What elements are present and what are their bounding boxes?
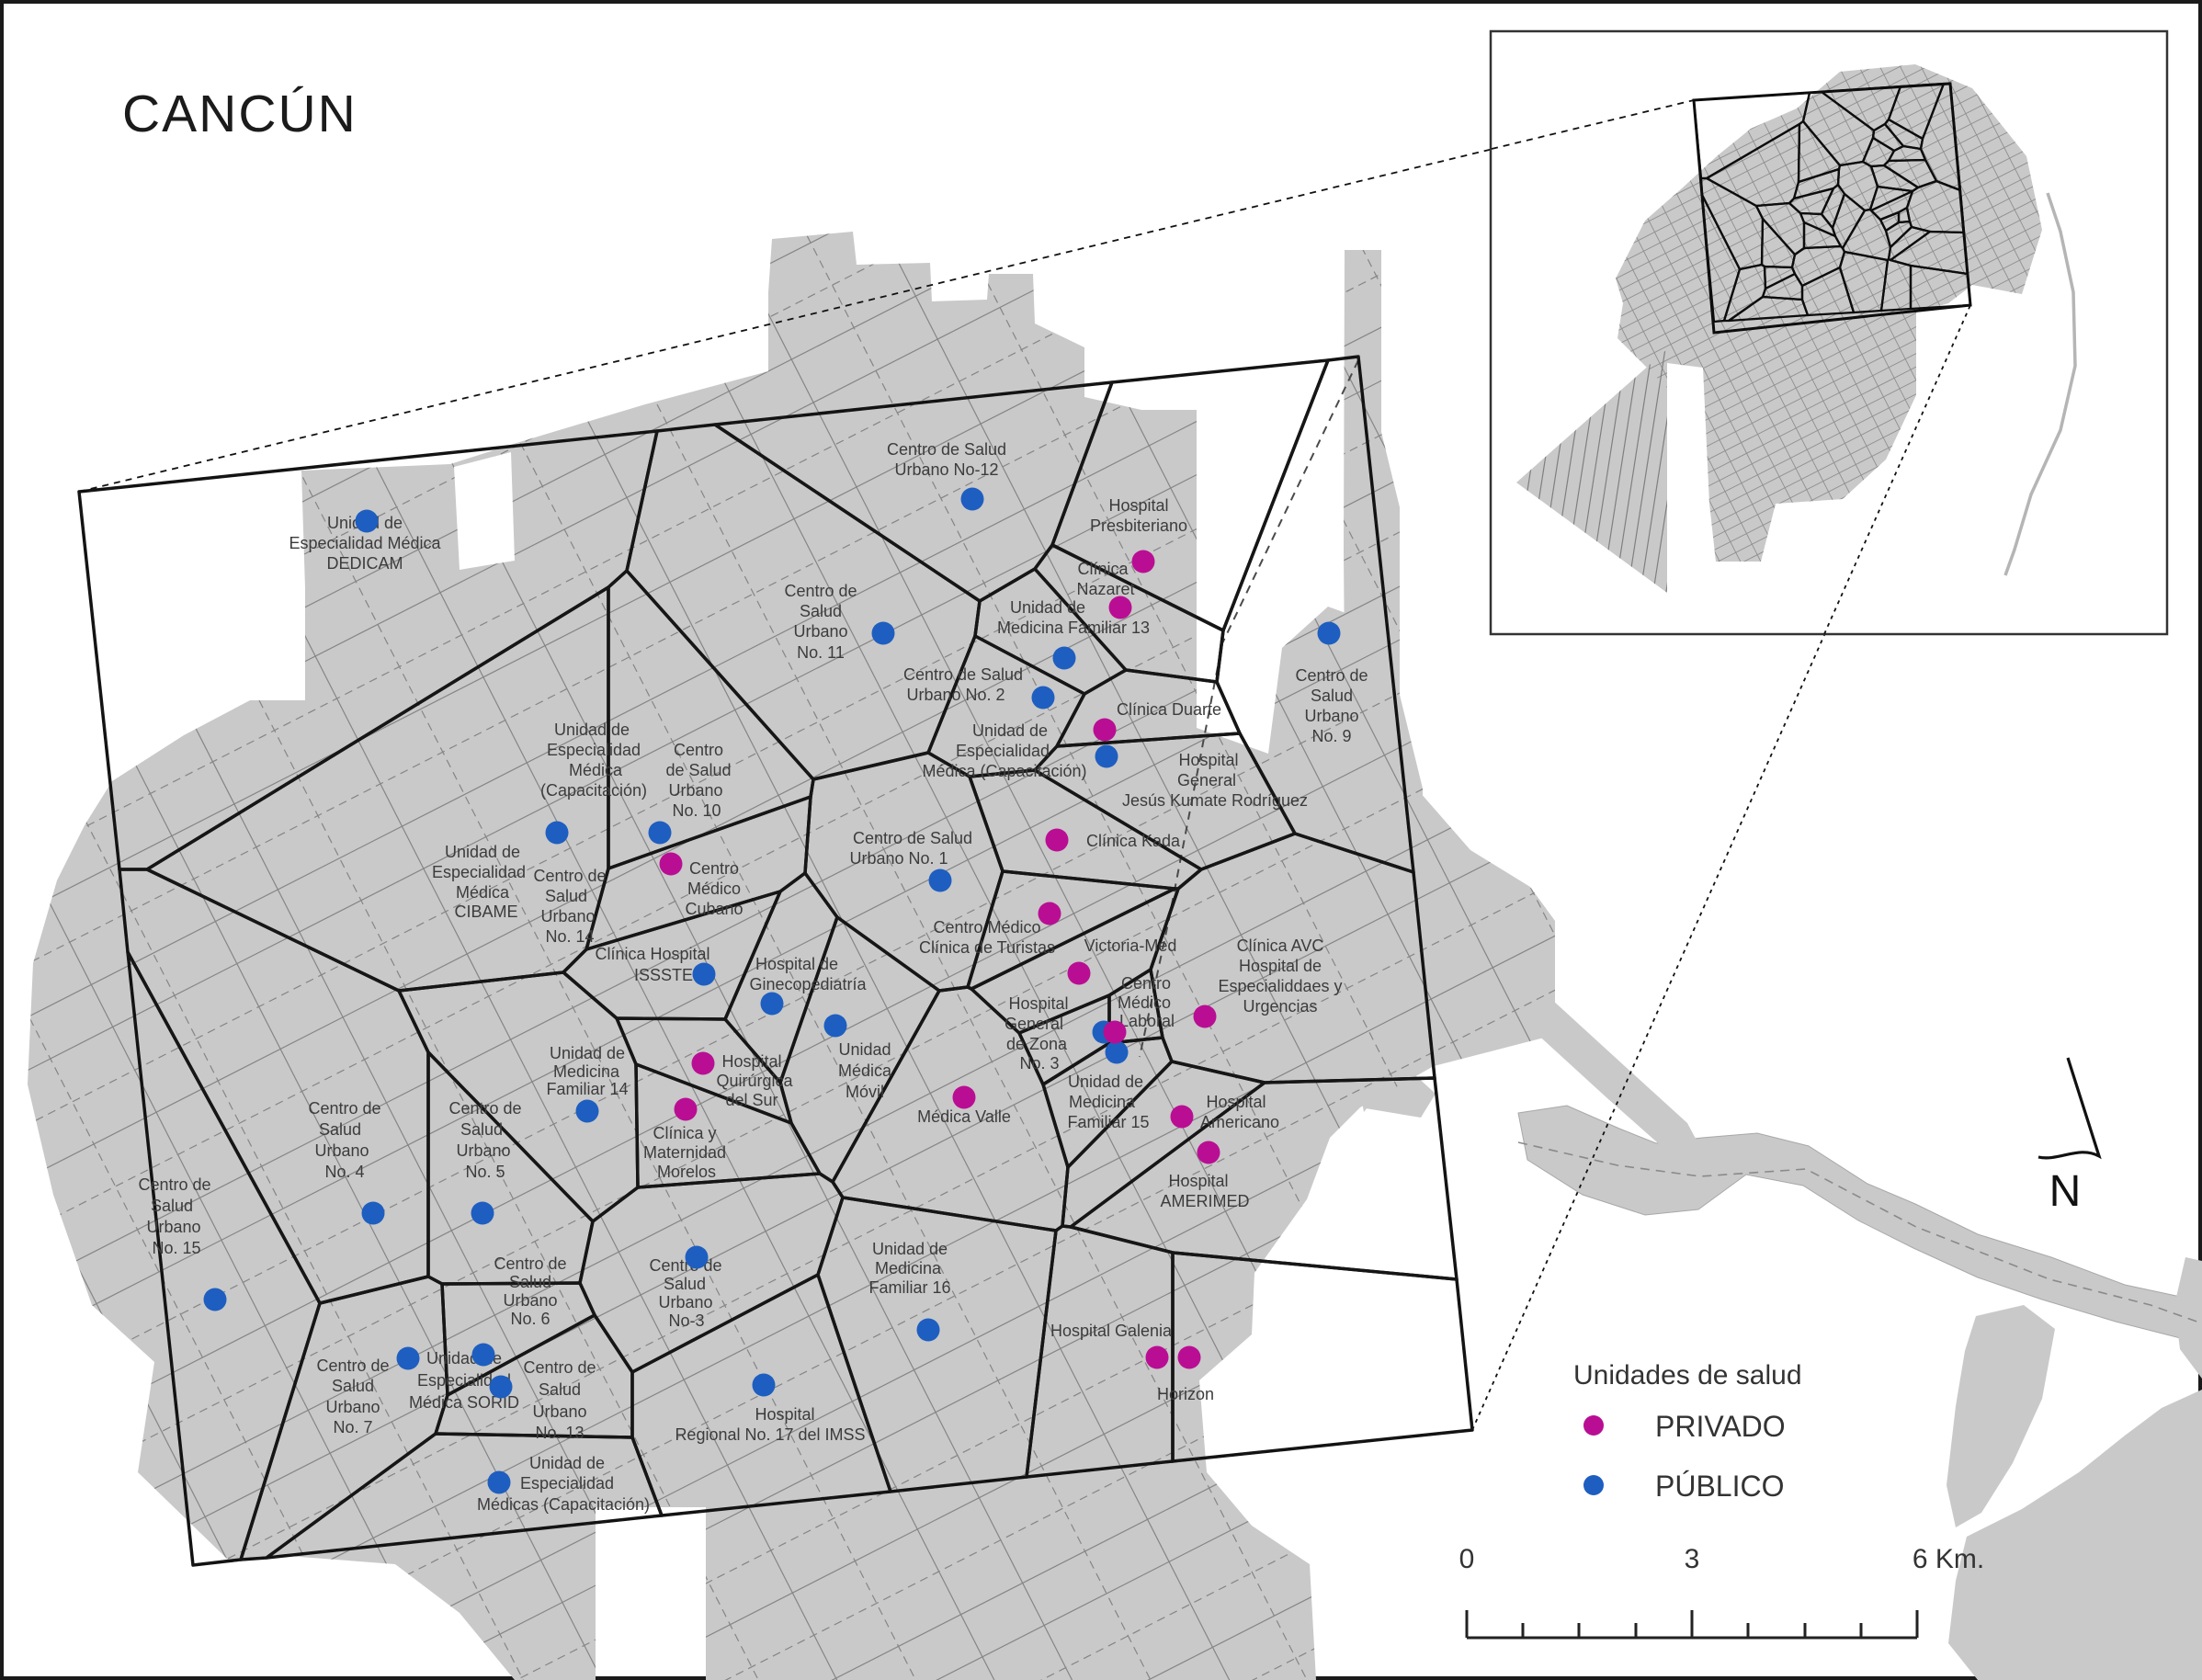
svg-text:No. 4: No. 4 [324,1163,364,1181]
svg-text:Médicas (Capacitación): Médicas (Capacitación) [477,1495,650,1514]
svg-text:No. 13: No. 13 [535,1424,584,1442]
svg-text:Hospital: Hospital [1178,751,1238,769]
svg-text:Unidad de: Unidad de [1068,1073,1143,1091]
svg-text:Hospital de: Hospital de [755,955,838,973]
svg-text:Americano: Americano [1200,1113,1279,1131]
svg-text:Centro: Centro [689,859,739,878]
svg-text:Hospital de: Hospital de [1239,957,1322,975]
svg-text:Medicina: Medicina [875,1259,942,1277]
svg-text:Unidad de: Unidad de [972,721,1048,740]
svg-text:No. 7: No. 7 [333,1418,372,1436]
svg-text:General: General [1177,771,1236,789]
svg-text:Centro: Centro [674,741,723,759]
svg-text:CIBAME: CIBAME [454,902,517,921]
svg-text:Urbano: Urbano [793,622,847,641]
svg-text:de Zona: de Zona [1006,1035,1068,1053]
svg-text:Salud: Salud [664,1275,706,1293]
svg-text:Clínica Duarte: Clínica Duarte [1117,700,1221,719]
svg-text:Médica: Médica [456,883,510,902]
svg-text:(Capacitación): (Capacitación) [540,781,647,800]
svg-text:Urbano No. 1: Urbano No. 1 [849,849,948,868]
svg-text:Regional No. 17 del IMSS: Regional No. 17 del IMSS [675,1425,865,1444]
svg-text:Familiar 14: Familiar 14 [546,1080,628,1098]
svg-text:Centro de: Centro de [308,1099,380,1118]
svg-text:N: N [2049,1167,2082,1216]
svg-text:Salud: Salud [539,1380,581,1399]
svg-text:Hospital: Hospital [1168,1172,1228,1190]
svg-text:Maternidad: Maternidad [643,1143,726,1162]
svg-text:PRIVADO: PRIVADO [1655,1410,1786,1443]
svg-text:Médica (Capacitación): Médica (Capacitación) [922,762,1086,780]
svg-text:de Salud: de Salud [665,761,731,779]
svg-text:No. 3: No. 3 [1019,1054,1059,1073]
svg-text:Victoria-Med: Victoria-Med [1084,936,1177,955]
svg-text:Unidad de: Unidad de [1010,598,1085,617]
svg-text:General: General [1005,1015,1063,1033]
svg-text:Centro de Salud: Centro de Salud [887,440,1006,459]
svg-text:Unidad de: Unidad de [529,1454,605,1472]
svg-text:Especialiddaes y: Especialiddaes y [1218,977,1342,995]
svg-text:Unidades de salud: Unidades de salud [1573,1360,1802,1391]
svg-text:No. 6: No. 6 [510,1310,550,1328]
svg-text:No. 15: No. 15 [152,1239,200,1257]
svg-text:Urbano: Urbano [314,1141,369,1160]
svg-text:Familiar 16: Familiar 16 [868,1278,950,1297]
svg-text:Horizon: Horizon [1157,1385,1214,1403]
svg-text:No. 14: No. 14 [545,927,594,946]
svg-text:Nazaret: Nazaret [1076,580,1134,598]
svg-text:DEDICAM: DEDICAM [326,554,403,573]
svg-text:Centro de Salud: Centro de Salud [903,665,1023,684]
svg-text:Urbano: Urbano [668,781,722,800]
svg-text:Especialidad: Especialidad [547,741,641,759]
svg-text:Especialidad: Especialidad [432,863,526,881]
svg-text:Centro de: Centro de [784,582,857,600]
svg-text:Clínica Kada: Clínica Kada [1086,832,1181,850]
svg-text:0: 0 [1459,1544,1475,1574]
svg-text:Centro: Centro [1121,974,1171,993]
svg-text:Centro de: Centro de [448,1099,521,1118]
svg-text:Medicina: Medicina [553,1062,620,1081]
svg-text:Hospital: Hospital [755,1405,814,1424]
svg-text:Salud: Salud [319,1120,361,1139]
svg-text:Unidad de: Unidad de [550,1044,625,1062]
svg-text:ISSSTE: ISSSTE [634,966,693,984]
svg-text:CANCÚN: CANCÚN [122,85,358,143]
svg-text:Especialidad: Especialidad [956,742,1050,760]
svg-text:Salud: Salud [332,1377,374,1395]
svg-text:Clínica AVC: Clínica AVC [1237,936,1324,955]
svg-text:Urbano No. 2: Urbano No. 2 [906,686,1005,704]
svg-text:Hospital: Hospital [721,1052,781,1071]
svg-text:Salud: Salud [509,1273,551,1291]
svg-text:Urbano: Urbano [658,1293,712,1311]
svg-text:Centro Médico: Centro Médico [933,918,1040,936]
svg-text:Urgencias: Urgencias [1243,997,1317,1016]
svg-text:Clínica de Turistas: Clínica de Turistas [919,938,1055,957]
svg-text:Centro de: Centro de [1295,666,1368,685]
svg-text:Unidad de: Unidad de [872,1240,948,1258]
svg-text:Salud: Salud [800,602,842,620]
svg-text:Unidad de: Unidad de [554,721,630,739]
svg-text:6 Km.: 6 Km. [1913,1544,1984,1574]
svg-text:Médico: Médico [687,880,741,898]
svg-text:Jesús Kumate Rodríguez: Jesús Kumate Rodríguez [1122,791,1308,810]
svg-text:Presbiteriano: Presbiteriano [1090,516,1187,535]
svg-text:No. 11: No. 11 [797,643,845,662]
svg-text:No-3: No-3 [668,1311,704,1330]
svg-text:Clínica Hospital: Clínica Hospital [595,945,709,963]
svg-text:Morelos: Morelos [657,1163,716,1181]
svg-text:Móvil: Móvil [846,1083,884,1101]
svg-text:Centro de: Centro de [533,867,606,885]
svg-text:Hospital: Hospital [1108,496,1168,515]
svg-text:Salud: Salud [1311,687,1353,705]
svg-text:Salud: Salud [545,887,587,905]
svg-text:No. 5: No. 5 [465,1163,505,1181]
svg-text:Centro de: Centro de [138,1175,210,1194]
svg-text:Medicina Familiar 13: Medicina Familiar 13 [997,619,1150,637]
svg-text:Centro de: Centro de [316,1356,389,1375]
svg-text:del Sur: del Sur [725,1091,778,1109]
svg-text:Urbano: Urbano [456,1141,510,1160]
svg-text:Laboral: Laboral [1119,1012,1175,1030]
svg-text:Especialidad: Especialidad [520,1474,614,1493]
svg-text:Urbano: Urbano [540,907,595,925]
svg-text:Especialidad Médica: Especialidad Médica [289,534,441,552]
svg-text:Medicina: Medicina [1069,1093,1136,1111]
svg-text:No. 10: No. 10 [672,801,721,820]
svg-text:Médica: Médica [838,1061,892,1080]
svg-text:Cubano: Cubano [685,900,743,918]
svg-text:Centro de Salud: Centro de Salud [853,829,972,847]
svg-text:No. 9: No. 9 [1311,727,1351,745]
svg-text:Centro de: Centro de [494,1254,566,1273]
svg-text:Familiar 15: Familiar 15 [1067,1113,1149,1131]
svg-text:Urbano: Urbano [503,1291,557,1310]
svg-text:Clínica: Clínica [1077,560,1129,578]
svg-text:Hospital: Hospital [1008,994,1068,1013]
svg-text:Urbano: Urbano [1304,707,1358,725]
svg-text:Médica Valle: Médica Valle [917,1107,1011,1126]
svg-text:Ginecopediatría: Ginecopediatría [749,975,867,993]
svg-text:AMERIMED: AMERIMED [1160,1192,1249,1210]
svg-text:Unidad de: Unidad de [445,843,520,861]
svg-text:Urbano: Urbano [325,1398,380,1416]
svg-text:Urbano No-12: Urbano No-12 [894,460,998,479]
svg-text:Unidad: Unidad [838,1040,891,1059]
svg-text:Urbano: Urbano [532,1402,586,1421]
svg-text:Salud: Salud [151,1197,193,1215]
svg-text:Médica: Médica [569,761,623,779]
svg-text:PÚBLICO: PÚBLICO [1655,1470,1784,1503]
svg-text:Hospital: Hospital [1206,1093,1266,1111]
svg-text:Salud: Salud [460,1120,503,1139]
svg-text:Quirúrgica: Quirúrgica [716,1072,793,1090]
svg-text:Médico: Médico [1118,993,1171,1012]
svg-text:3: 3 [1685,1544,1700,1574]
svg-text:Clínica y: Clínica y [653,1124,716,1142]
svg-text:Urbano: Urbano [146,1218,200,1236]
svg-text:Hospital Galenia: Hospital Galenia [1050,1322,1173,1340]
svg-text:Centro de: Centro de [523,1358,596,1377]
